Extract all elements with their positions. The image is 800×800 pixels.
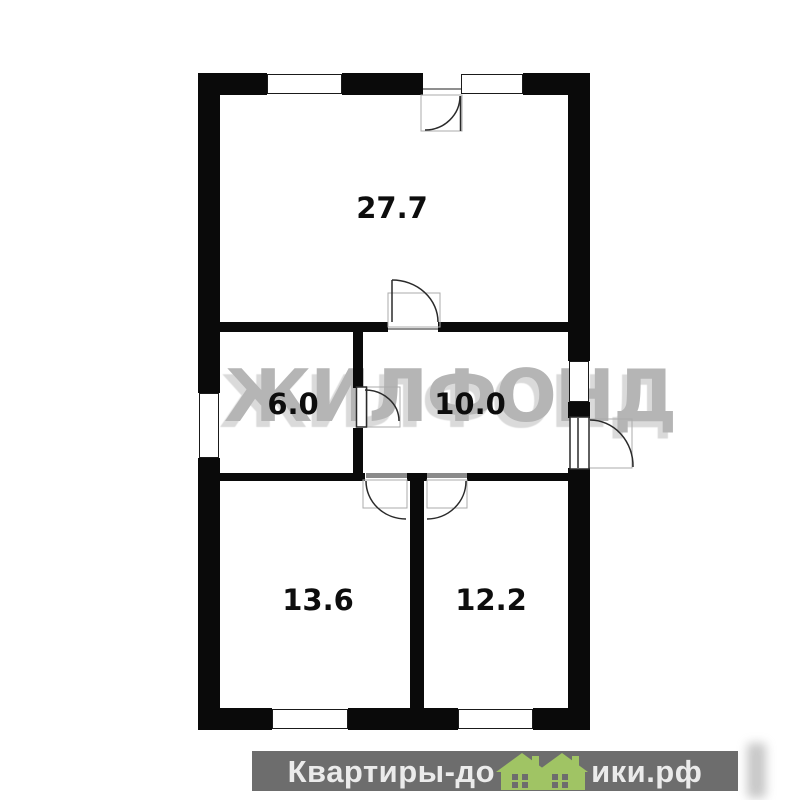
door-symbols-layer xyxy=(0,0,800,800)
room-area-label: 12.2 xyxy=(455,583,527,617)
door-icon-exterior-right xyxy=(570,417,633,469)
door-icon-room-12 xyxy=(427,473,467,519)
floor-plan-image: ЖИЛФОНД xyxy=(0,0,800,800)
site-name-text-after: ики.рф xyxy=(591,756,702,787)
house-icon xyxy=(496,753,548,790)
door-icon-entrance-top xyxy=(421,95,462,131)
door-icon-room-13 xyxy=(363,473,407,519)
houses-icon xyxy=(496,752,590,790)
site-watermark-bar: Квартиры-до ики.рф xyxy=(252,751,738,791)
door-icon-room-6 xyxy=(357,387,401,427)
site-name-text-before: Квартиры-до xyxy=(288,756,495,787)
room-area-label: 6.0 xyxy=(267,387,318,421)
door-icon-room-top xyxy=(388,280,440,327)
room-area-label: 27.7 xyxy=(356,191,428,225)
room-area-label: 10.0 xyxy=(434,387,506,421)
room-area-label: 13.6 xyxy=(282,583,354,617)
